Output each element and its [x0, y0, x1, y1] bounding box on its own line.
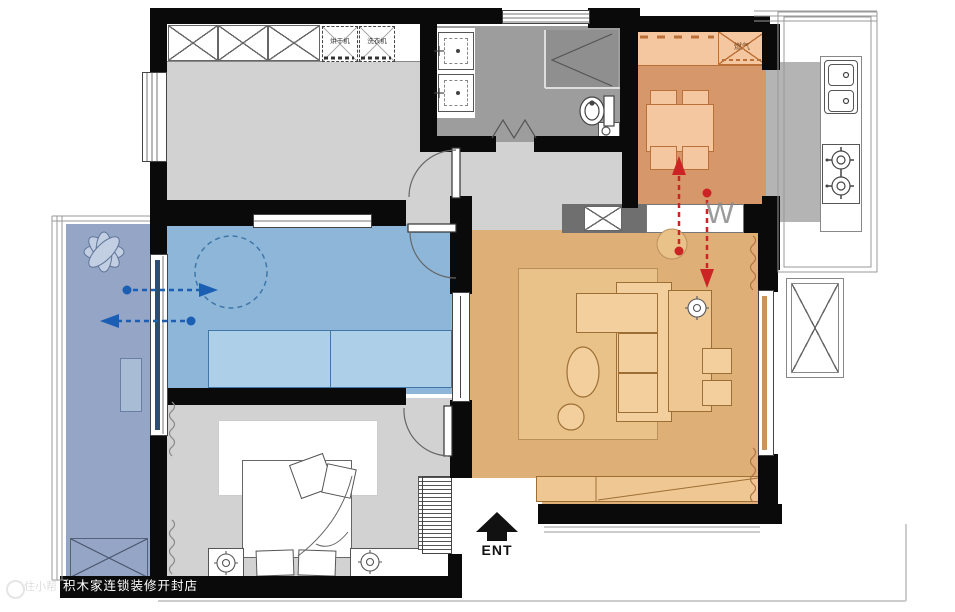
shower-icon — [545, 30, 620, 88]
door-arcs — [404, 120, 536, 456]
stove-burners-icon — [826, 147, 855, 199]
round-side-table — [657, 229, 687, 259]
toilet-icon — [580, 96, 614, 135]
logo-watermark-circle — [6, 580, 25, 599]
floor-plan: 烘干机 洗衣机 燃气 W ENT 积木家连锁装修开封店 住小帮 — [0, 0, 955, 612]
bifold-door — [492, 120, 536, 138]
dashed-circle-marker — [195, 236, 267, 308]
entrance-label: ENT — [472, 543, 522, 558]
plant-icon — [84, 232, 124, 272]
faucet-icons — [434, 46, 849, 104]
symbol-overlay — [0, 0, 955, 612]
w-watermark: W — [696, 198, 744, 230]
tv-cabinet-diagonal — [598, 478, 758, 500]
lamp-icons — [214, 296, 709, 575]
entrance-arrow-icon — [476, 512, 518, 541]
lamp-icon — [358, 550, 382, 574]
washer-label: 洗衣机 — [359, 39, 395, 46]
kitchen-frame-lines — [754, 11, 877, 272]
lamp-icon — [685, 296, 709, 320]
dryer-label: 烘干机 — [322, 39, 358, 46]
coffee-table-icon — [558, 347, 599, 430]
curtain-icons — [170, 236, 756, 574]
blanket-curve — [298, 476, 352, 556]
blue-flow-arrows — [100, 283, 218, 328]
gas-meter-label: 燃气 — [718, 43, 766, 51]
store-watermark: 积木家连锁装修开封店 — [63, 580, 283, 593]
bay-window-lines — [544, 527, 760, 532]
logo-watermark: 住小帮 — [24, 582, 64, 594]
lamp-icon — [214, 551, 238, 575]
window-glazing — [147, 14, 589, 434]
